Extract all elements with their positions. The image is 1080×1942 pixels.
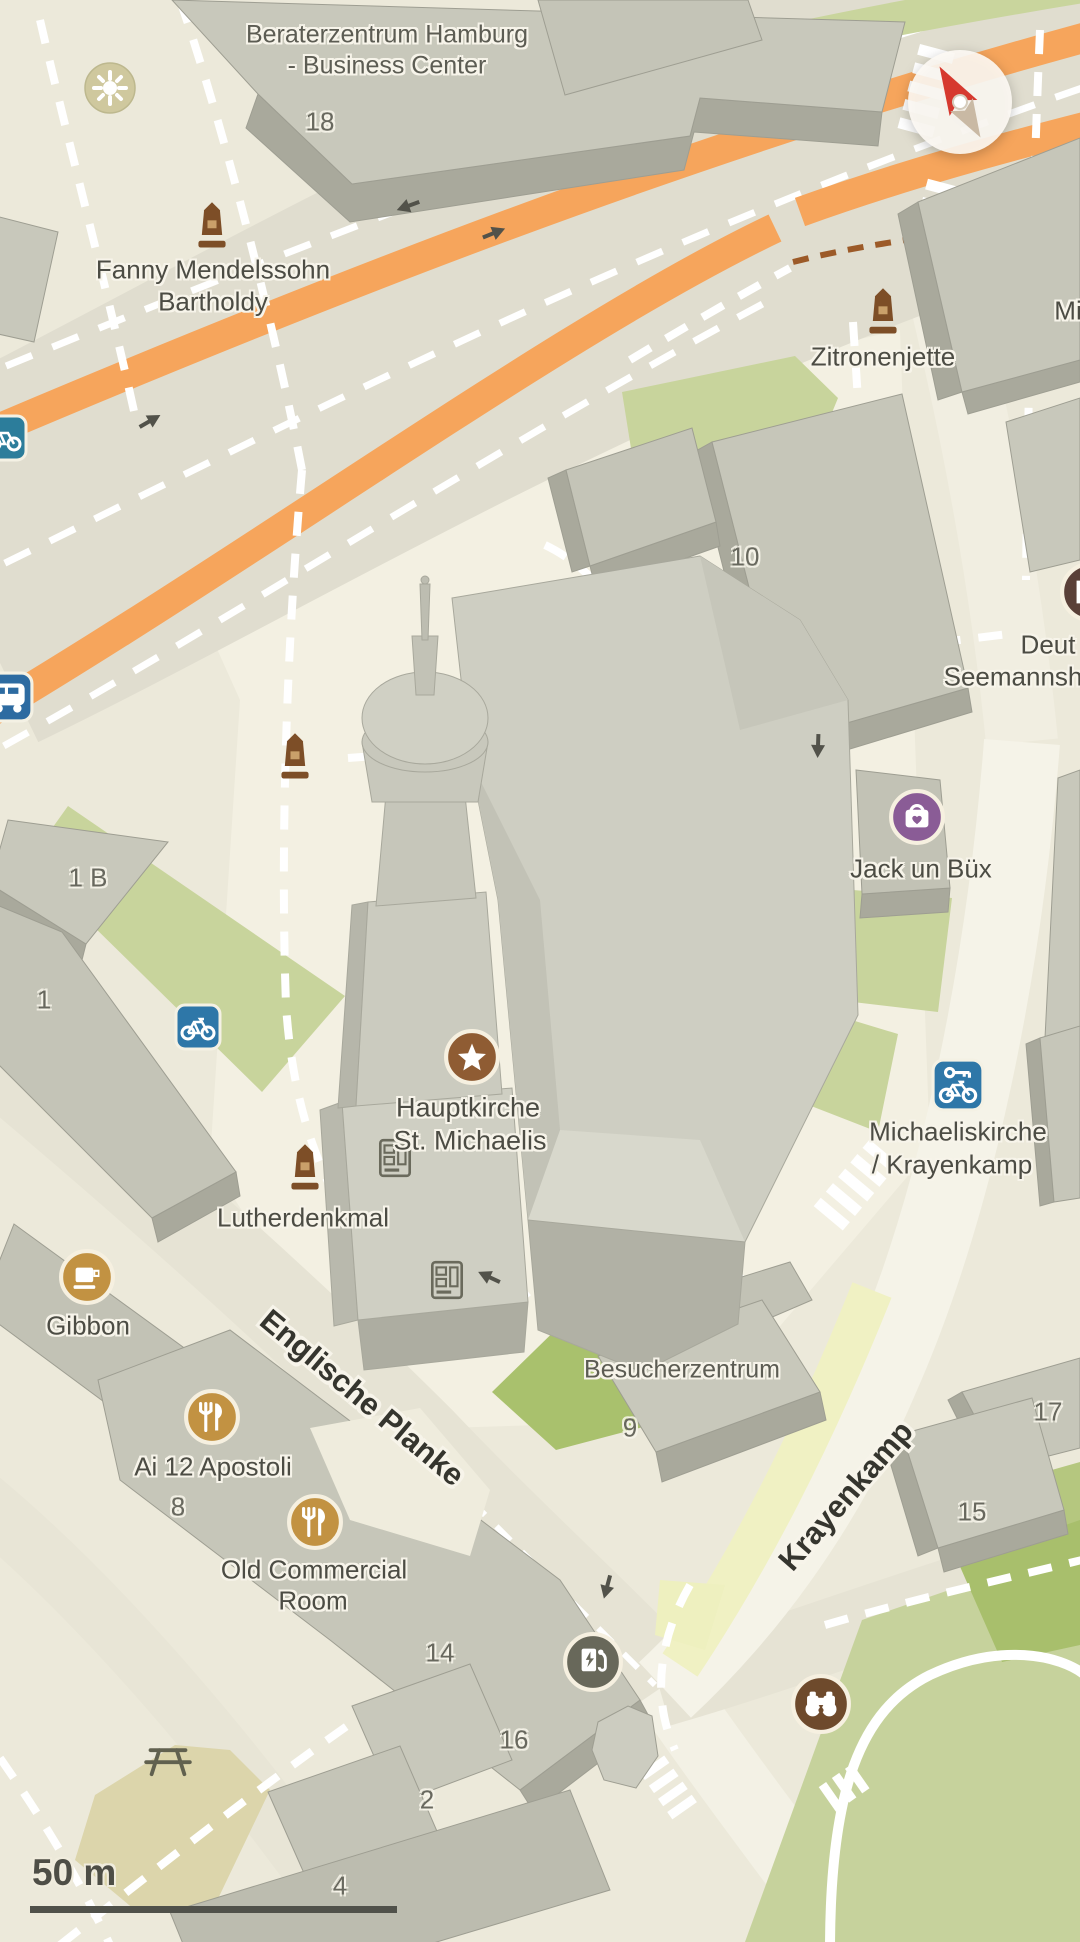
binoculars-icon[interactable]: [790, 1673, 852, 1735]
coffee-cup-glyph: [58, 1248, 116, 1306]
label-michaeliskirche-line2[interactable]: / Krayenkamp: [872, 1150, 1032, 1181]
binoculars-glyph: [790, 1673, 852, 1735]
bike-glyph: [174, 1003, 222, 1051]
obelisk-glyph: [284, 1142, 326, 1194]
fork-knife-glyph: [183, 1388, 241, 1446]
label-hauptkirche-line1[interactable]: Hauptkirche: [396, 1093, 540, 1124]
star-landmark-icon[interactable]: [443, 1028, 501, 1086]
bus-stop-icon[interactable]: [0, 671, 34, 723]
map-canvas[interactable]: Beraterzentrum Hamburg - Business Center…: [0, 0, 1080, 1942]
charger-glyph: [562, 1631, 624, 1693]
label-old-commercial-line1[interactable]: Old Commercial: [221, 1555, 407, 1586]
fountain-icon: [85, 63, 135, 113]
monument-icon-plaza[interactable]: [274, 731, 316, 783]
label-besucherzentrum: Besucherzentrum: [584, 1356, 780, 1385]
lodging-icon-partial[interactable]: [1059, 561, 1080, 623]
restaurant-icon-old-commercial[interactable]: [286, 1493, 344, 1551]
obelisk-glyph: [191, 200, 233, 252]
key-bike-glyph: [931, 1058, 985, 1112]
obelisk-glyph: [862, 286, 904, 338]
fork-knife-glyph: [286, 1493, 344, 1551]
obelisk-glyph: [274, 731, 316, 783]
monument-icon-lutherdenkmal[interactable]: [284, 1142, 326, 1194]
vending-glyph: [429, 1259, 465, 1301]
star-glyph: [443, 1028, 501, 1086]
monument-icon-zitronenjette[interactable]: [862, 286, 904, 338]
label-mi-truncated[interactable]: Mi: [1054, 296, 1080, 327]
label-old-commercial-line2[interactable]: Room: [278, 1586, 347, 1617]
house-number-9: 9: [623, 1413, 637, 1444]
scale-bar: [30, 1906, 397, 1913]
house-number-15: 15: [958, 1497, 987, 1528]
bus-glyph: [0, 671, 34, 723]
monument-icon-fanny[interactable]: [191, 200, 233, 252]
house-number-10: 10: [731, 542, 760, 573]
bike-parking-icon[interactable]: [174, 1003, 222, 1051]
house-number-4: 4: [333, 1871, 347, 1902]
picnic-table-icon: [144, 1740, 192, 1780]
label-michaeliskirche-line1[interactable]: Michaeliskirche: [869, 1117, 1047, 1148]
label-gibbon[interactable]: Gibbon: [46, 1311, 130, 1342]
label-beraterzentrum-line2: - Business Center: [288, 52, 487, 81]
label-ai-12-apostoli[interactable]: Ai 12 Apostoli: [134, 1452, 292, 1483]
label-jack-un-bux[interactable]: Jack un Büx: [850, 854, 992, 885]
label-fanny-line2[interactable]: Bartholdy: [158, 287, 268, 318]
house-number-8: 8: [171, 1492, 185, 1523]
bag-heart-glyph: [888, 788, 946, 846]
label-lutherdenkmal[interactable]: Lutherdenkmal: [217, 1203, 389, 1234]
house-number-16: 16: [500, 1725, 529, 1756]
label-fanny-line1[interactable]: Fanny Mendelssohn: [96, 255, 330, 286]
house-number-1: 1: [37, 985, 51, 1016]
lodging-glyph: [1059, 561, 1080, 623]
compass-glyph: [905, 47, 1015, 157]
shopping-bag-icon[interactable]: [888, 788, 946, 846]
label-beraterzentrum-line1: Beraterzentrum Hamburg: [246, 21, 528, 50]
house-number-2: 2: [420, 1785, 434, 1816]
scale-label: 50 m: [32, 1852, 116, 1894]
cafe-icon-gibbon[interactable]: [58, 1248, 116, 1306]
house-number-1b: 1 B: [68, 863, 107, 894]
ev-charging-icon[interactable]: [562, 1631, 624, 1693]
bike-rental-icon[interactable]: [931, 1058, 985, 1112]
label-seemannsheim-line1[interactable]: Deut: [1021, 630, 1076, 661]
label-zitronenjette[interactable]: Zitronenjette: [811, 342, 956, 373]
house-number-14: 14: [426, 1638, 455, 1669]
bike-parking-icon-left-edge[interactable]: [0, 414, 28, 462]
house-number-17: 17: [1034, 1397, 1063, 1428]
compass-north-icon[interactable]: [905, 47, 1015, 157]
info-vending-icon-2: [429, 1259, 465, 1301]
restaurant-icon-apostoli[interactable]: [183, 1388, 241, 1446]
label-seemannsheim-line2[interactable]: Seemannsh: [944, 662, 1080, 693]
label-hauptkirche-line2[interactable]: St. Michaelis: [393, 1126, 546, 1157]
bike-glyph: [0, 414, 28, 462]
picnic-glyph: [144, 1740, 192, 1780]
house-number-18: 18: [306, 107, 335, 138]
